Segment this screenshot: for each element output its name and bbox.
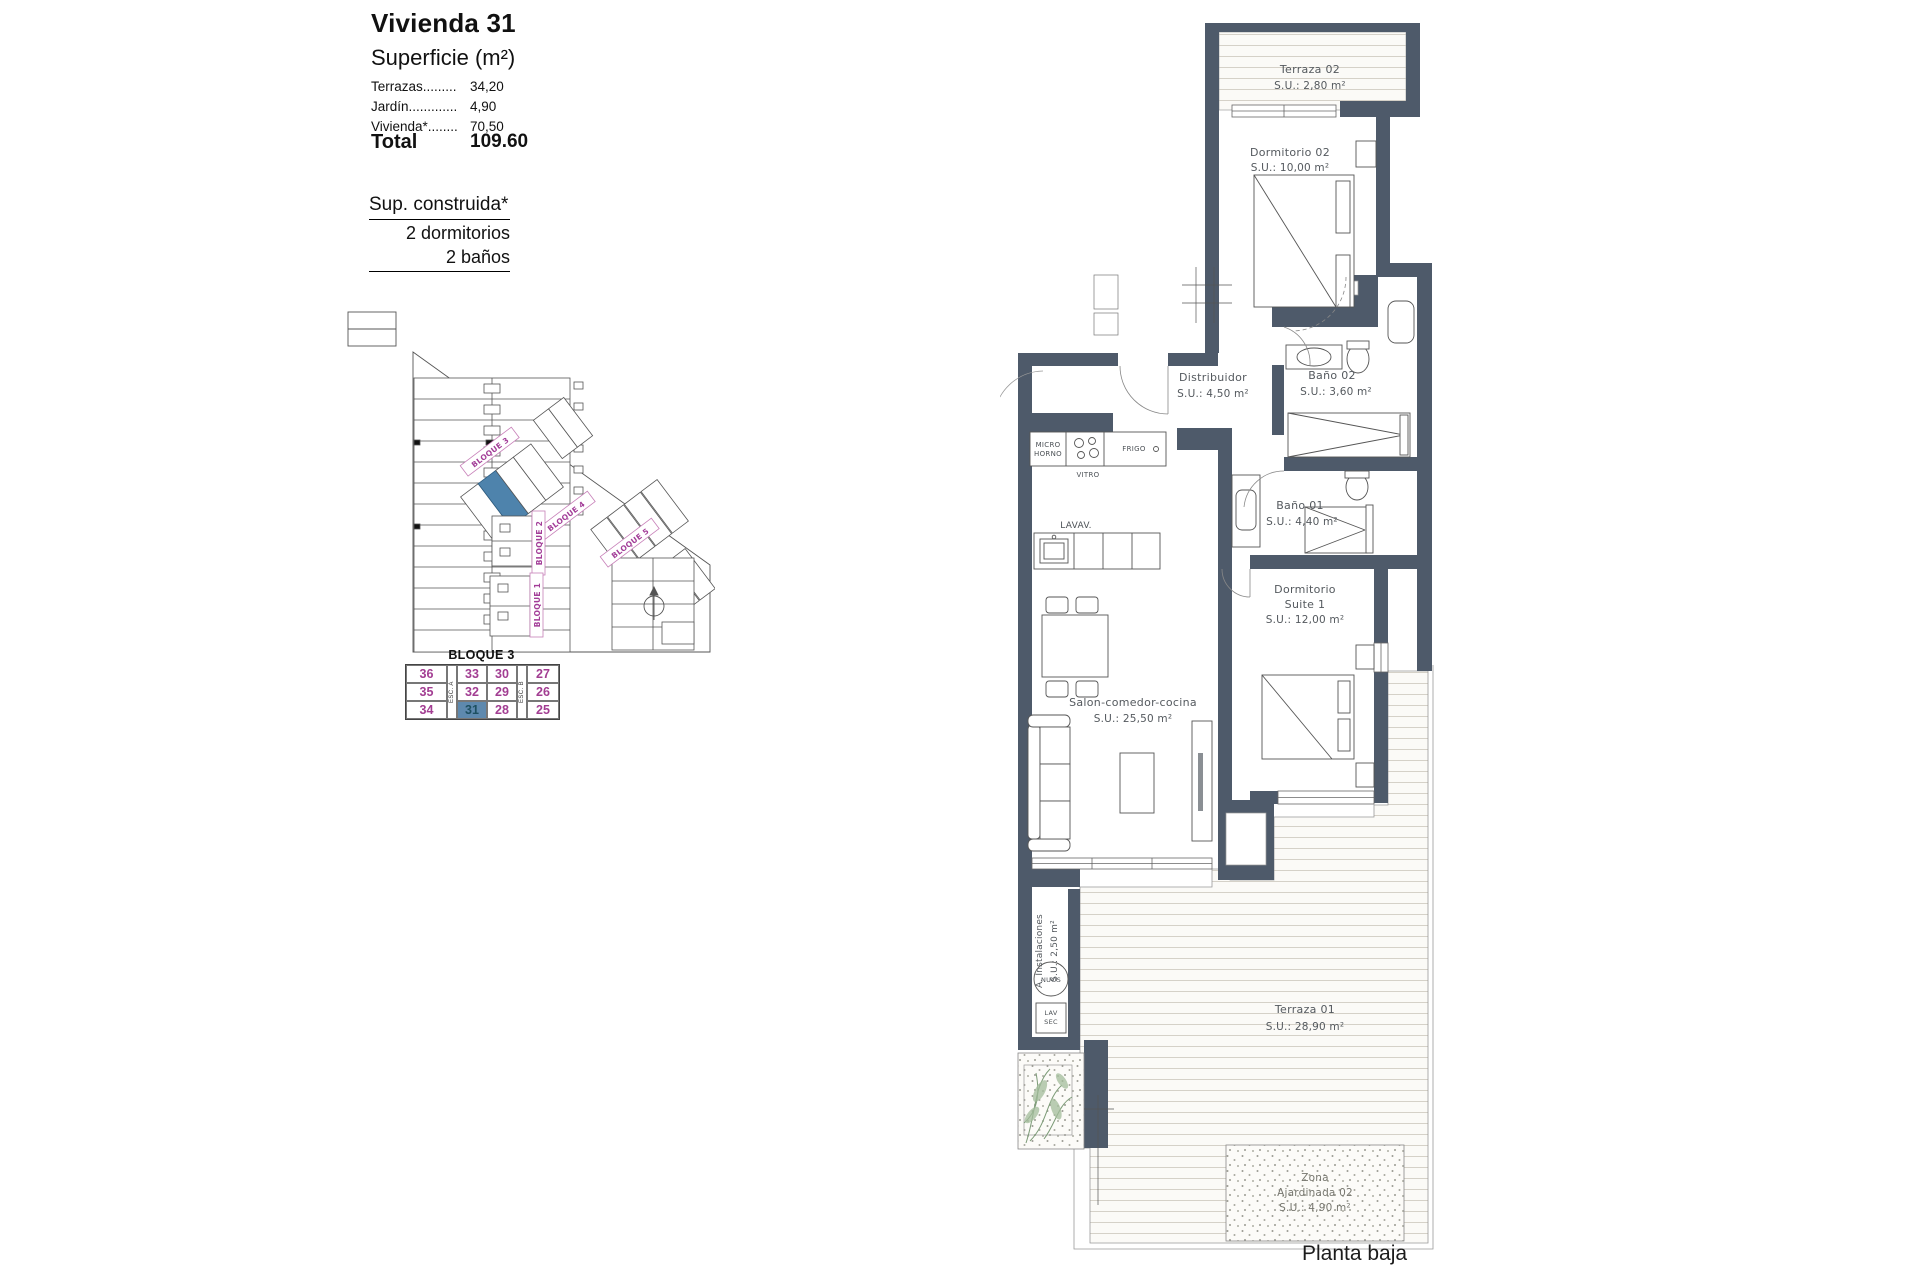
lav-label: LAV — [1044, 1009, 1057, 1017]
storage-niche — [1226, 813, 1266, 865]
bano02-label: Baño 02 — [1308, 369, 1356, 382]
lavav-counter — [1034, 533, 1160, 569]
terraza02-label: Terraza 02 — [1279, 63, 1340, 76]
jardinera — [1018, 1053, 1084, 1149]
terraza01-label: Terraza 01 — [1274, 1003, 1335, 1016]
bloque-table-grid: 36 ESC. A 33 30 ESC. B 27 35 32 29 26 34… — [405, 664, 560, 720]
surface-subtitle: Superficie (m²) — [371, 45, 515, 71]
bano01-label: Baño 01 — [1276, 499, 1324, 512]
bano01-su: S.U.: 4,40 m² — [1266, 516, 1338, 528]
distribuidor-label: Distribuidor — [1179, 371, 1247, 384]
row-value: 34,20 — [470, 79, 504, 94]
built-surface-title: Sup. construida* — [369, 194, 510, 220]
floorplan-sheet: { "info_panel": { "title": "Vivienda 31"… — [0, 0, 1920, 1280]
salon-label: Salon-comedor-cocina — [1069, 696, 1197, 709]
suite-label-2: Suite 1 — [1285, 598, 1326, 611]
total-value: 109.60 — [470, 131, 528, 153]
unit-cell: 27 — [527, 665, 559, 683]
bloque1-label: BLOQUE 1 — [530, 573, 543, 637]
dorm02-su: S.U.: 10,00 m² — [1251, 162, 1330, 174]
unit-cell: 29 — [487, 683, 517, 701]
zona-label-1: Zona — [1301, 1172, 1329, 1184]
right-terraced-block — [612, 558, 694, 650]
floor-name: Planta baja — [1302, 1242, 1407, 1266]
unit-cell: 32 — [457, 683, 487, 701]
unit-cell: 25 — [527, 701, 559, 719]
floor-plan: MICRO HORNO VITRO FRIGO LAVAV. — [1000, 13, 1450, 1253]
lavav-label: LAVAV. — [1060, 521, 1092, 531]
surface-row-terrazas: Terrazas......... 34,20 — [371, 79, 531, 99]
unit-cell: 35 — [406, 683, 447, 701]
salon-su: S.U.: 25,50 m² — [1094, 713, 1173, 725]
row-value: 4,90 — [470, 99, 496, 114]
surface-total-row: Total 109.60 — [371, 131, 531, 154]
zona-label-2: Ajardinada 02 — [1277, 1187, 1353, 1199]
distribuidor-su: S.U.: 4,50 m² — [1177, 388, 1249, 400]
instalaciones-su: S.U.: 2,50 m² — [1050, 920, 1060, 982]
page-title: Vivienda 31 — [371, 8, 516, 39]
stairs-b-label: ESC. B — [517, 665, 527, 719]
tv-cabinet — [1192, 721, 1212, 841]
bloque2-label: BLOQUE 2 — [532, 511, 545, 575]
bano02-su: S.U.: 3,60 m² — [1300, 386, 1372, 398]
unit-cell: 30 — [487, 665, 517, 683]
suite-su: S.U.: 12,00 m² — [1266, 614, 1345, 626]
horno-label: HORNO — [1034, 450, 1062, 458]
terraza01-su: S.U.: 28,90 m² — [1266, 1021, 1345, 1033]
stairs-a-label: ESC. A — [447, 665, 457, 719]
unit-cell: 28 — [487, 701, 517, 719]
sofa — [1028, 715, 1070, 851]
row-label: Terrazas......... — [371, 79, 457, 94]
bano01-fixtures — [1232, 471, 1373, 553]
surface-row-jardin: Jardín............. 4,90 — [371, 99, 531, 119]
unit-cell: 33 — [457, 665, 487, 683]
micro-label: MICRO — [1036, 441, 1061, 449]
dorm02-label: Dormitorio 02 — [1250, 146, 1330, 159]
unit-cell-highlighted-31: 31 — [457, 701, 487, 719]
terraza02-su: S.U.: 2,80 m² — [1274, 80, 1346, 92]
row-label: Jardín............. — [371, 99, 457, 114]
meter-boxes — [1094, 275, 1118, 335]
bloque2-units — [492, 516, 532, 566]
svg-text:BLOQUE 2: BLOQUE 2 — [535, 521, 544, 565]
bathrooms-count: 2 baños — [369, 247, 510, 272]
vitro-label: VITRO — [1076, 471, 1099, 479]
frigo-label: FRIGO — [1122, 445, 1146, 453]
suite-label-1: Dormitorio — [1274, 583, 1336, 596]
svg-text:BLOQUE 1: BLOQUE 1 — [533, 583, 542, 627]
bloque1-units — [490, 576, 530, 636]
suite-bed — [1262, 645, 1374, 787]
bedrooms-count: 2 dormitorios — [369, 223, 510, 244]
unit-cell: 26 — [527, 683, 559, 701]
coffee-table — [1120, 753, 1154, 813]
dining-set — [1042, 597, 1108, 697]
zona-su: S.U.: 4,90 m² — [1279, 1202, 1351, 1214]
sec-label: SEC — [1044, 1018, 1058, 1026]
surface-table: Terrazas......... 34,20 Jardín..........… — [371, 79, 531, 139]
total-label: Total — [371, 131, 417, 153]
bloque-table-title: BLOQUE 3 — [405, 648, 558, 662]
site-plan: BLOQUE 3 BLOQUE 4 BLOQUE 5 BLOQUE 2 BLOQ… — [340, 300, 715, 658]
bloque3-unit-table: BLOQUE 3 36 ESC. A 33 30 ESC. B 27 35 32… — [405, 648, 560, 720]
unit-cell: 36 — [406, 665, 447, 683]
instalaciones-label: A. Instalaciones — [1035, 914, 1045, 988]
unit-cell: 34 — [406, 701, 447, 719]
built-surface-block: Sup. construida* 2 dormitorios 2 baños — [369, 194, 510, 272]
